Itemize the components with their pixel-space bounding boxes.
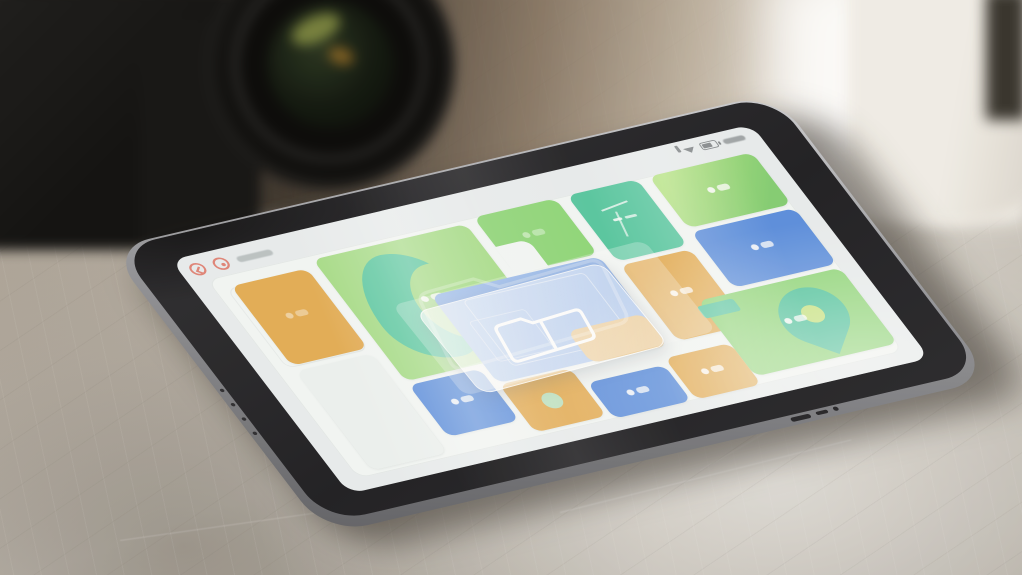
folder-window-icon — [469, 281, 616, 375]
window-frame — [986, 0, 1022, 120]
photo-scene — [0, 0, 1022, 575]
